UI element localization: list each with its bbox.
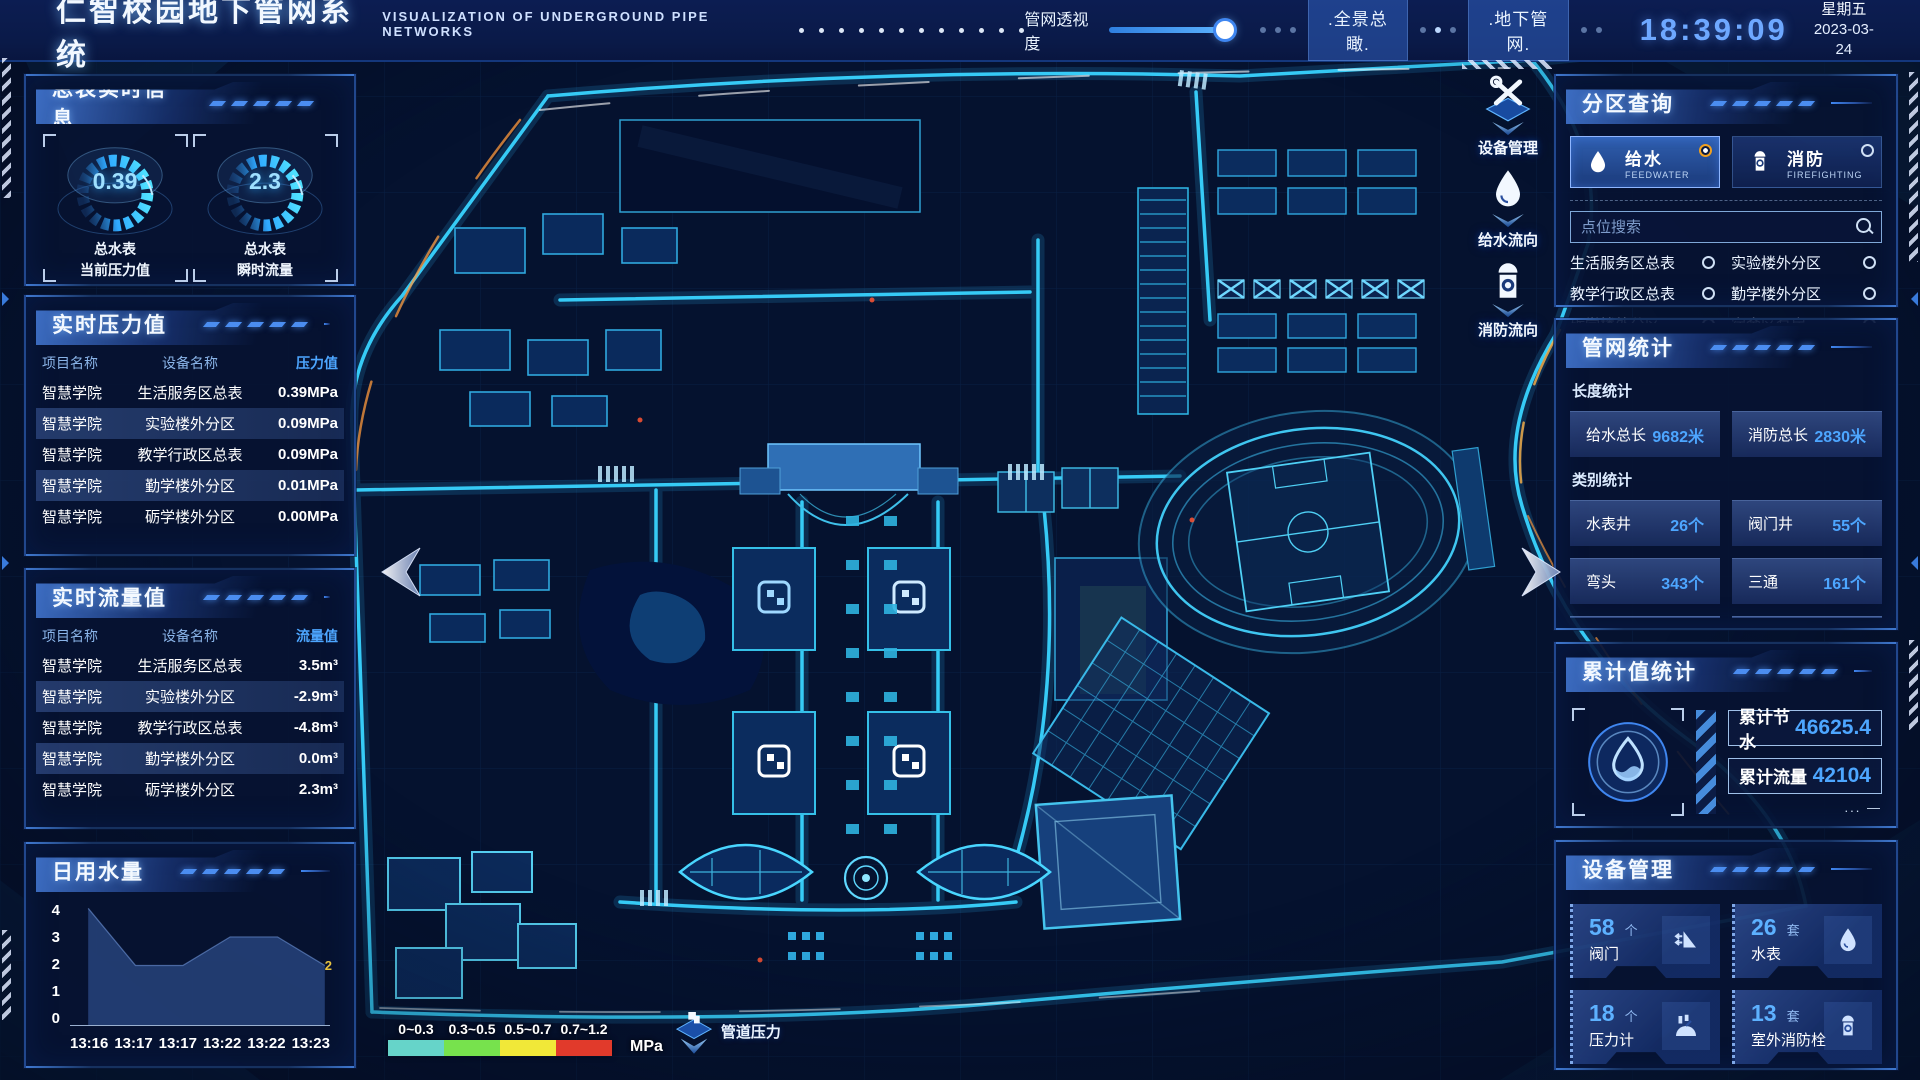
- device-card-hydrant[interactable]: 13套 室外消防栓: [1732, 990, 1882, 1064]
- hydrant-icon: [1824, 1002, 1872, 1050]
- point-item[interactable]: 实验楼外分区: [1731, 247, 1882, 278]
- pipe-opacity-control: 管网透视度: [1024, 6, 1229, 54]
- panel-cumulative-stats: 累计值统计 累计节水46625.4 累计流量42104 ... —: [1554, 642, 1898, 828]
- pipe-opacity-slider[interactable]: [1109, 27, 1229, 33]
- section-title: 累计值统计: [1582, 656, 1697, 686]
- decorative-dots: ... —: [1845, 800, 1882, 815]
- table-row[interactable]: 智慧学院砺学楼外分区0.00MPa: [36, 501, 344, 532]
- stat-tile: 阀门井55个: [1732, 500, 1882, 546]
- tab-sublabel: FIREFIGHTING: [1787, 170, 1863, 180]
- page-title: 仁智校园地下管网系统: [56, 0, 366, 74]
- point-list: 生活服务区总表 实验楼外分区 教学行政区总表 勤学楼外分区 砺学楼外分区 宿舍区…: [1570, 247, 1882, 323]
- dot-separator: [1260, 27, 1296, 33]
- radio-icon[interactable]: [1702, 256, 1715, 269]
- subsection-title: 类别统计: [1572, 469, 1880, 490]
- gauge-label: 瞬时流量: [237, 262, 293, 278]
- valve-icon: [1662, 916, 1710, 964]
- gauge-label: 总水表: [244, 241, 286, 257]
- search-input[interactable]: [1571, 219, 1851, 236]
- edge-arrow: [2, 292, 16, 306]
- tab-feedwater[interactable]: 给水 FEEDWATER: [1570, 136, 1720, 188]
- section-title: 日用水量: [52, 856, 144, 886]
- edge-decoration: [2, 58, 11, 198]
- dot-separator: [1420, 27, 1456, 33]
- panel-meter-realtime: 总表实时信息 0.39 总水表 当前压力值: [24, 74, 356, 286]
- tool-label: 消防流向: [1478, 319, 1538, 340]
- stat-tile: 三通161个: [1732, 558, 1882, 604]
- legend-color-bar: [388, 1040, 612, 1056]
- gauge-label: 总水表: [94, 241, 136, 257]
- pipe-opacity-label: 管网透视度: [1024, 6, 1099, 54]
- water-drop-icon: [1484, 166, 1532, 214]
- hazard-stripe-divider: [1696, 710, 1716, 814]
- pressure-gauge-icon: [1662, 1002, 1710, 1050]
- tool-device-management[interactable]: 设备管理: [1478, 70, 1538, 158]
- hydrant-icon: [1485, 258, 1531, 304]
- stat-tile-clipped: [1570, 616, 1720, 618]
- daily-water-chart: 4 3 2 1 0 2 13:1613:1713:17 13:2213:2213…: [36, 902, 340, 1052]
- tab-firefighting[interactable]: 消防 FIREFIGHTING: [1732, 136, 1882, 188]
- tab-label: 消防: [1787, 145, 1863, 170]
- table-row[interactable]: 智慧学院教学行政区总表-4.8m³: [36, 712, 344, 743]
- section-title: 实时压力值: [52, 309, 167, 339]
- flow-gauge: 2.3 总水表 瞬时流量: [193, 134, 338, 282]
- chart-x-axis: 13:1613:1713:17 13:2213:2213:23: [70, 1035, 330, 1052]
- table-row[interactable]: 智慧学院教学行政区总表0.09MPa: [36, 439, 344, 470]
- radio-icon[interactable]: [1861, 144, 1874, 157]
- radio-icon[interactable]: [1863, 256, 1876, 269]
- dashboard: 仁智校园地下管网系统 VISUALIZATION OF UNDERGROUND …: [0, 0, 1920, 1080]
- chevron-down-icon: [1488, 214, 1528, 228]
- clock: 18:39:09: [1640, 12, 1788, 48]
- section-title: 设备管理: [1582, 854, 1674, 884]
- table-header: 项目名称设备名称流量值: [36, 622, 344, 650]
- edge-arrow: [2, 556, 16, 570]
- water-meter-icon: [1824, 916, 1872, 964]
- slider-knob[interactable]: [1216, 21, 1234, 39]
- radio-icon[interactable]: [1863, 287, 1876, 300]
- tool-fire-flow[interactable]: 消防流向: [1478, 258, 1538, 340]
- table-row[interactable]: 智慧学院生活服务区总表0.39MPa: [36, 377, 344, 408]
- chevron-down-icon: [1488, 304, 1528, 318]
- marker-label: 管道压力: [721, 1021, 781, 1042]
- page-subtitle: VISUALIZATION OF UNDERGROUND PIPE NETWOR…: [382, 9, 781, 39]
- section-title: 分区查询: [1582, 88, 1674, 118]
- map-next-arrow[interactable]: [1520, 546, 1566, 598]
- panel-realtime-flow: 实时流量值 项目名称设备名称流量值 智慧学院生活服务区总表3.5m³ 智慧学院实…: [24, 568, 356, 829]
- tool-feedwater-flow[interactable]: 给水流向: [1478, 166, 1538, 250]
- cumulative-saved-water: 累计节水46625.4: [1728, 710, 1882, 746]
- table-row[interactable]: 智慧学院砺学楼外分区2.3m³: [36, 774, 344, 805]
- radio-selected-icon[interactable]: [1699, 144, 1712, 157]
- weekday: 星期五: [1808, 0, 1880, 20]
- date-block: 星期五 2023-03-24: [1808, 0, 1880, 60]
- tab-label: 给水: [1625, 145, 1690, 170]
- panel-device-management: 设备管理 58个 阀门 26套 水表 18个 压力计: [1554, 840, 1898, 1070]
- table-row[interactable]: 智慧学院勤学楼外分区0.0m³: [36, 743, 344, 774]
- panel-pipe-stats: 管网统计 长度统计 给水总长9682米 消防总长2830米 类别统计 水表井26…: [1554, 318, 1898, 630]
- section-title: 实时流量值: [52, 582, 167, 612]
- panel-daily-water: 日用水量 4 3 2 1 0 2 13:1613:1713:17 13:2213…: [24, 842, 356, 1068]
- top-header: 仁智校园地下管网系统 VISUALIZATION OF UNDERGROUND …: [0, 0, 1920, 62]
- point-item[interactable]: 教学行政区总表: [1570, 278, 1721, 309]
- chart-end-value: 2: [325, 958, 332, 973]
- pipe-pressure-legend: 0~0.30.3~0.5 0.5~0.70.7~1.2 MPa 管道压力: [388, 1006, 781, 1056]
- point-item[interactable]: 生活服务区总表: [1570, 247, 1721, 278]
- table-row[interactable]: 智慧学院勤学楼外分区0.01MPa: [36, 470, 344, 501]
- stat-tile: 消防总长2830米: [1732, 411, 1882, 457]
- divider: [1570, 200, 1882, 201]
- overview-button[interactable]: .全景总瞰.: [1308, 0, 1409, 61]
- stat-tile-clipped: [1732, 616, 1882, 618]
- legend-range-labels: 0~0.30.3~0.5 0.5~0.70.7~1.2: [388, 1021, 612, 1037]
- edge-arrow: [1904, 292, 1918, 306]
- pipe-pressure-marker[interactable]: 管道压力: [675, 1006, 781, 1056]
- hydrant-icon: [1743, 145, 1777, 179]
- panel-zone-query: 分区查询 给水 FEEDWATER 消防 FIREFIGHTING: [1554, 74, 1898, 307]
- table-row[interactable]: 智慧学院生活服务区总表3.5m³: [36, 650, 344, 681]
- header-dots: [799, 28, 1024, 33]
- faucet-marker-icon: [675, 1006, 713, 1056]
- tool-label: 设备管理: [1478, 137, 1538, 158]
- stat-tile: 水表井26个: [1570, 500, 1720, 546]
- map-tool-column: 设备管理 给水流向 消防流向: [1466, 70, 1550, 346]
- table-row[interactable]: 智慧学院实验楼外分区-2.9m³: [36, 681, 344, 712]
- tab-sublabel: FEEDWATER: [1625, 170, 1690, 180]
- stat-tile: 弯头343个: [1570, 558, 1720, 604]
- gauge-value: 2.3: [193, 168, 338, 195]
- device-card-water-meter[interactable]: 26套 水表: [1732, 904, 1882, 978]
- table-header: 项目名称设备名称压力值: [36, 349, 344, 377]
- edge-decoration: [2, 930, 11, 1020]
- tool-label: 给水流向: [1478, 229, 1538, 250]
- cumulative-flow: 累计流量42104: [1728, 758, 1882, 794]
- pressure-gauge: 0.39 总水表 当前压力值: [43, 134, 188, 282]
- gauge-label: 当前压力值: [80, 262, 150, 278]
- cumulative-water-icon: [1572, 708, 1684, 816]
- point-item[interactable]: 勤学楼外分区: [1731, 278, 1882, 309]
- water-drop-icon: [1581, 145, 1615, 179]
- panel-realtime-pressure: 实时压力值 项目名称设备名称压力值 智慧学院生活服务区总表0.39MPa 智慧学…: [24, 295, 356, 556]
- chevron-down-icon: [1488, 122, 1528, 136]
- edge-decoration: [1909, 72, 1918, 262]
- edge-decoration: [1909, 640, 1918, 730]
- stat-tile: 给水总长9682米: [1570, 411, 1720, 457]
- map-prev-arrow[interactable]: [376, 546, 422, 598]
- gauge-value: 0.39: [43, 168, 188, 195]
- section-header: 总表实时信息: [36, 82, 344, 124]
- edge-decoration: [1462, 60, 1552, 69]
- subsection-title: 长度统计: [1572, 380, 1880, 401]
- section-title: 管网统计: [1582, 332, 1674, 362]
- underground-pipes-button[interactable]: .地下管网.: [1468, 0, 1569, 61]
- point-search[interactable]: [1570, 211, 1882, 243]
- table-row[interactable]: 智慧学院实验楼外分区0.09MPa: [36, 408, 344, 439]
- edge-arrow: [1904, 556, 1918, 570]
- date: 2023-03-24: [1808, 20, 1880, 61]
- wrench-icon: [1482, 70, 1534, 122]
- search-icon[interactable]: [1851, 214, 1877, 240]
- radio-icon[interactable]: [1702, 287, 1715, 300]
- device-card-pressure-gauge[interactable]: 18个 压力计: [1570, 990, 1720, 1064]
- device-card-valve[interactable]: 58个 阀门: [1570, 904, 1720, 978]
- header-slashes: [211, 101, 312, 106]
- legend-unit: MPa: [630, 1038, 663, 1056]
- dot-separator: [1581, 27, 1602, 33]
